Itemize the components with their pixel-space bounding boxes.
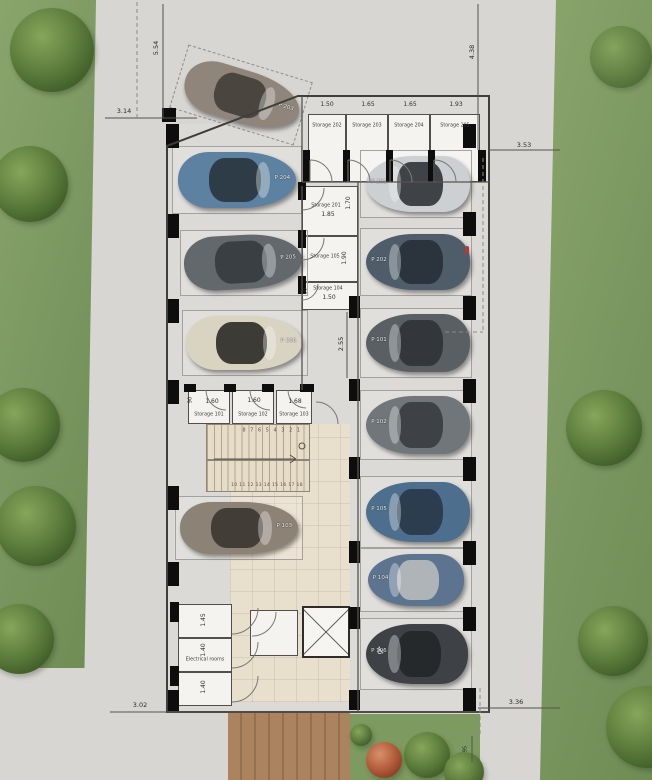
wall-pier bbox=[166, 690, 179, 712]
dim-label: 1.50 bbox=[322, 295, 335, 301]
car-roof bbox=[397, 560, 439, 601]
room-label: Storage 204 bbox=[394, 125, 423, 130]
parking-spot-label: P 101 bbox=[371, 338, 387, 344]
car-windshield bbox=[389, 324, 401, 361]
parking-spot-label: P 103 bbox=[277, 524, 293, 530]
dim-label: 1.45 bbox=[201, 613, 207, 626]
parking-spot-label: P 204 bbox=[275, 176, 291, 182]
car-p102: P 102 bbox=[366, 396, 470, 454]
wall-pier bbox=[478, 150, 486, 182]
car-windshield bbox=[256, 162, 270, 198]
storage-102-room bbox=[232, 390, 274, 424]
wall-pier bbox=[224, 384, 236, 392]
parking-spot-label: P 206 bbox=[281, 339, 297, 345]
wall-pier bbox=[349, 607, 360, 629]
wall-pier bbox=[463, 541, 476, 565]
parking-spot-label: P 104 bbox=[373, 576, 389, 582]
dim-label: 5.54 bbox=[153, 41, 160, 55]
wall-pier bbox=[463, 212, 476, 236]
room-label: Storage 202 bbox=[312, 125, 341, 130]
parking-spot-label: P 201 bbox=[371, 180, 387, 186]
wall-pier bbox=[463, 296, 476, 320]
dim-label: 1.65 bbox=[361, 102, 374, 108]
wall-pier bbox=[166, 486, 179, 510]
tree bbox=[350, 724, 372, 746]
wall-pier bbox=[463, 457, 476, 481]
vestibule-room bbox=[250, 610, 298, 656]
dim-label: 1.90 bbox=[342, 251, 348, 264]
room-label: Storage 203 bbox=[352, 125, 381, 130]
car-roof bbox=[216, 322, 267, 364]
wall-pier bbox=[303, 150, 310, 182]
parking-spot-label: P 102 bbox=[371, 420, 387, 426]
car-p104: P 104 bbox=[368, 554, 464, 606]
car-p201: P 201 bbox=[366, 156, 470, 212]
wall-pier bbox=[298, 230, 306, 248]
wall-pier bbox=[184, 384, 196, 392]
wall-pier bbox=[166, 214, 179, 238]
dim-label: 3.36 bbox=[509, 699, 523, 706]
car-roof bbox=[209, 158, 261, 202]
wall-pier bbox=[349, 457, 360, 479]
car-windshield bbox=[258, 511, 272, 544]
dim-label: 1.60 bbox=[205, 399, 218, 405]
wall-pier bbox=[166, 562, 179, 586]
wall-pier bbox=[262, 384, 274, 392]
car-p205: P 205 bbox=[183, 232, 304, 292]
wall-pier bbox=[300, 384, 314, 392]
stair-numbers-upper: 8 7 6 5 4 3 2 1 bbox=[242, 430, 301, 435]
dim-label: 3.14 bbox=[117, 108, 131, 115]
room-label: Storage 201 bbox=[311, 205, 340, 210]
wall-pier bbox=[463, 607, 476, 631]
dim-label: 3.02 bbox=[133, 702, 147, 709]
dim-label: 1.40 bbox=[201, 680, 207, 693]
car-roof bbox=[397, 631, 442, 678]
room-label: Storage 105 bbox=[310, 256, 339, 261]
car-roof bbox=[397, 162, 443, 206]
wall-pier bbox=[386, 150, 393, 182]
room-label: Storage 205 bbox=[440, 125, 469, 130]
wall-pier bbox=[166, 124, 179, 148]
wall-pier bbox=[170, 602, 179, 622]
car-p101: P 101 bbox=[366, 314, 470, 372]
dim-label: 1.40 bbox=[201, 643, 207, 656]
tree bbox=[590, 26, 652, 88]
tree bbox=[566, 390, 642, 466]
dim-label: 2.55 bbox=[338, 337, 345, 351]
car-p202: P 202 bbox=[366, 234, 470, 290]
car-windshield bbox=[388, 635, 400, 673]
tree bbox=[578, 606, 648, 676]
wall-pier bbox=[349, 296, 360, 318]
car-p105: P 105 bbox=[366, 482, 470, 542]
car-p206: P 206 bbox=[186, 316, 302, 370]
room-label: Storage 101 bbox=[194, 414, 223, 419]
car-windshield bbox=[389, 563, 401, 596]
room-label: Storage 103 bbox=[279, 414, 308, 419]
dim-label: 1.68 bbox=[288, 399, 301, 405]
dim-label: 80 bbox=[304, 288, 309, 294]
dim-label: 90 bbox=[189, 397, 194, 403]
wheelchair-icon: ♿ bbox=[376, 646, 385, 657]
car-roof bbox=[397, 402, 443, 447]
dim-label: 4.38 bbox=[469, 45, 476, 59]
wall-pier bbox=[463, 688, 476, 712]
dim-label: 1.60 bbox=[247, 398, 260, 404]
parking-spot-label: P 202 bbox=[371, 258, 387, 264]
dim-label: 1.65 bbox=[403, 102, 416, 108]
wall-pier bbox=[162, 108, 176, 122]
room-label: Storage 102 bbox=[238, 414, 267, 419]
dim-label: 1.70 bbox=[346, 196, 352, 209]
car-roof bbox=[397, 489, 443, 536]
room-label: Storage 104 bbox=[313, 288, 342, 293]
car-windshield bbox=[389, 406, 401, 443]
tree bbox=[10, 8, 94, 92]
car-roof bbox=[214, 240, 268, 285]
parking-spot-label: P 105 bbox=[371, 507, 387, 513]
dim-label: 3.53 bbox=[517, 142, 531, 149]
car-roof bbox=[397, 320, 443, 365]
dim-label: 1.85 bbox=[321, 212, 334, 218]
wall-pier bbox=[166, 299, 179, 323]
stair-numbers-lower: 10 11 12 13 14 15 16 17 18 bbox=[231, 484, 303, 488]
wall-pier bbox=[349, 690, 360, 710]
dim-label: 95 bbox=[464, 746, 469, 752]
car-p204: P 204 bbox=[178, 152, 296, 208]
red-shrub bbox=[366, 742, 402, 778]
car-roof bbox=[397, 240, 443, 284]
floor-plan: P 203 P 204 P 205 P 206 P 103 P 201 P 20… bbox=[0, 0, 652, 780]
car-roof bbox=[211, 508, 263, 549]
grass-strip-left bbox=[0, 0, 96, 668]
dim-label: 1.50 bbox=[320, 102, 333, 108]
wall-pier bbox=[343, 150, 350, 182]
car-p103: P 103 bbox=[180, 502, 298, 554]
elevator-shaft bbox=[302, 606, 350, 658]
dim-label: 1.93 bbox=[449, 102, 462, 108]
wall-pier bbox=[349, 541, 360, 563]
wall-pier bbox=[428, 150, 435, 182]
wall-pier bbox=[463, 379, 476, 403]
parking-spot-label: P 205 bbox=[280, 255, 296, 261]
storage-101-room bbox=[188, 390, 230, 424]
storage-103-room bbox=[276, 390, 312, 424]
wall-pier bbox=[349, 379, 360, 401]
wall-pier bbox=[166, 380, 179, 404]
wall-pier bbox=[170, 666, 179, 686]
room-label: Electrical rooms bbox=[186, 659, 224, 664]
taillight bbox=[465, 246, 469, 254]
wall-pier bbox=[298, 182, 306, 200]
